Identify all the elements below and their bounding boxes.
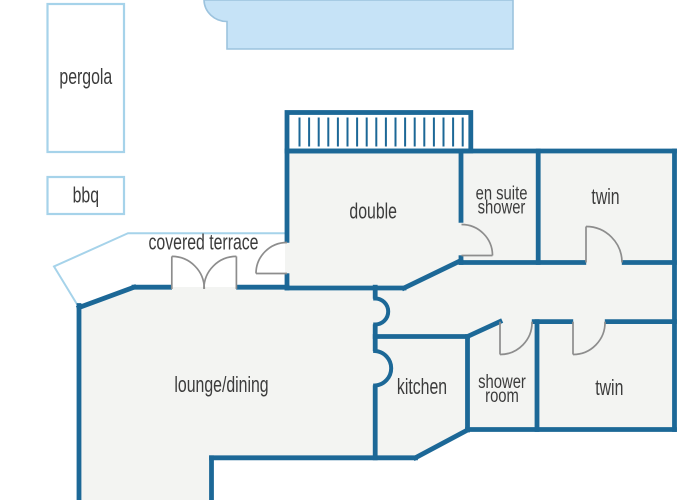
svg-text:lounge/dining: lounge/dining <box>174 374 268 398</box>
svg-text:covered terrace: covered terrace <box>149 231 259 255</box>
svg-text:twin: twin <box>595 377 623 401</box>
svg-text:shower: shower <box>478 197 526 218</box>
svg-text:kitchen: kitchen <box>397 376 447 400</box>
svg-text:twin: twin <box>591 185 619 209</box>
svg-text:room: room <box>485 385 519 406</box>
svg-text:pergola: pergola <box>59 65 112 89</box>
svg-text:bbq: bbq <box>73 184 99 208</box>
svg-text:double: double <box>349 200 397 224</box>
